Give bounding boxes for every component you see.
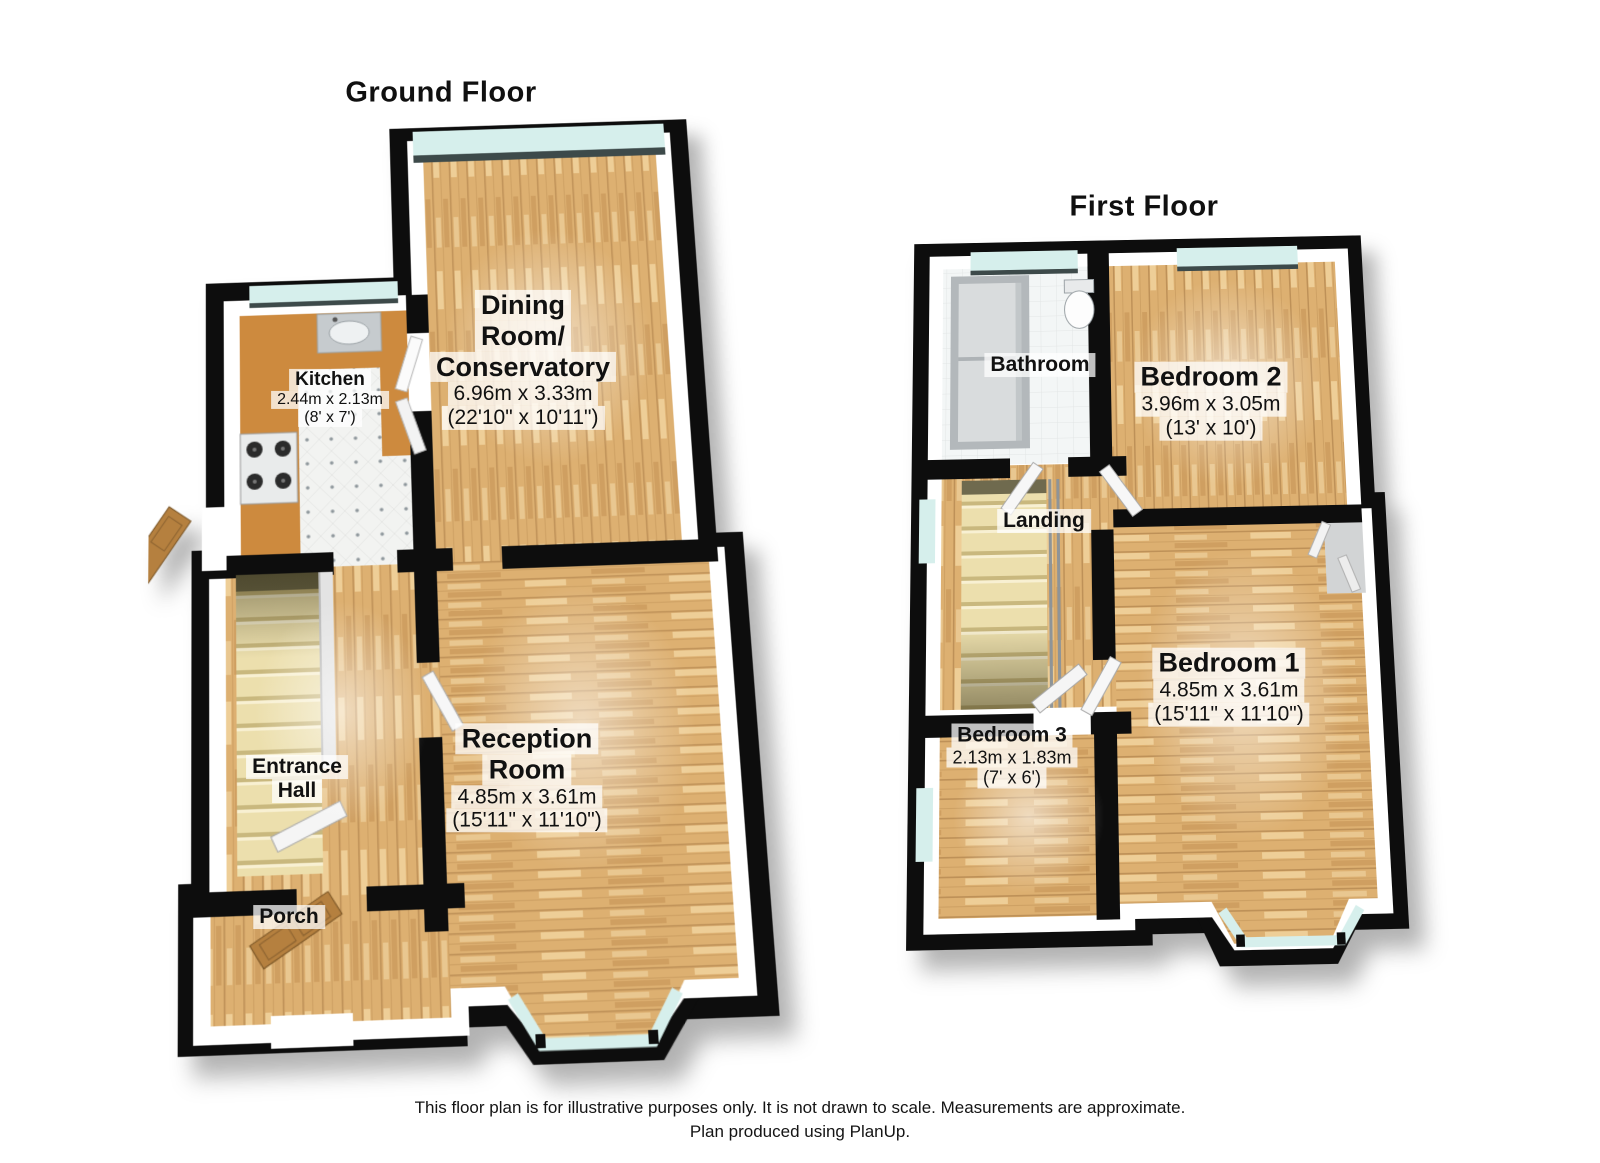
room-dim-imperial: (15'11" x 11'10") — [1148, 702, 1309, 726]
room-name-line: Reception — [456, 723, 599, 754]
room-dim-metric: 4.85m x 3.61m — [1154, 678, 1305, 702]
room-name-line: Room — [483, 754, 572, 785]
room-label-porch: Porch — [253, 905, 325, 929]
disclaimer-line2: Plan produced using PlanUp. — [0, 1120, 1600, 1144]
ground-floor-title: Ground Floor — [345, 77, 536, 110]
room-dim-imperial: (7' x 6') — [977, 768, 1047, 789]
room-dim-metric: 4.85m x 3.61m — [452, 785, 603, 809]
room-name-line: Bedroom 2 — [1134, 362, 1287, 393]
room-label-dining: Dining Room/ Conservatory 6.96m x 3.33m … — [430, 290, 616, 430]
room-dim-imperial: (22'10" x 10'11") — [442, 406, 605, 430]
room-name-line: Hall — [272, 779, 323, 803]
room-label-landing: Landing — [997, 509, 1091, 533]
room-name-line: Bedroom 1 — [1152, 648, 1305, 679]
room-name-line: Entrance — [246, 755, 348, 779]
room-dim-metric: 6.96m x 3.33m — [448, 382, 599, 406]
room-dim-metric: 2.13m x 1.83m — [946, 747, 1077, 768]
room-label-entrance-hall: Entrance Hall — [246, 755, 348, 803]
first-floor-plan — [873, 235, 1433, 979]
room-name-line: Bathroom — [984, 353, 1095, 377]
room-name-line: Conservatory — [430, 351, 616, 382]
first-floor-title: First Floor — [1070, 191, 1219, 224]
room-label-reception: Reception Room 4.85m x 3.61m (15'11" x 1… — [446, 723, 607, 832]
first-floor-drawing — [873, 235, 1433, 979]
toilet-icon — [1064, 279, 1094, 328]
room-name-line: Dining — [475, 290, 571, 321]
room-label-bedroom2: Bedroom 2 3.96m x 3.05m (13' x 10') — [1134, 362, 1287, 441]
room-dim-metric: 3.96m x 3.05m — [1136, 392, 1287, 416]
room-label-kitchen: Kitchen 2.44m x 2.13m (8' x 7') — [271, 369, 389, 427]
room-dim-imperial: (15'11" x 11'10") — [446, 809, 607, 833]
room-label-bedroom1: Bedroom 1 4.85m x 3.61m (15'11" x 11'10"… — [1148, 648, 1309, 727]
room-name-line: Kitchen — [289, 369, 371, 391]
ground-floor-plan — [144, 118, 804, 1082]
room-name-line: Porch — [253, 905, 325, 929]
disclaimer-line1: This floor plan is for illustrative purp… — [0, 1096, 1600, 1120]
room-dim-imperial: (8' x 7') — [298, 409, 361, 427]
side-door-icon — [144, 507, 190, 596]
floorplan-page: Ground Floor First Floor — [0, 0, 1600, 1163]
room-dim-imperial: (13' x 10') — [1160, 416, 1263, 440]
room-name-line: Landing — [997, 509, 1091, 533]
room-label-bedroom3: Bedroom 3 2.13m x 1.83m (7' x 6') — [946, 724, 1077, 789]
ground-floor-drawing — [144, 118, 804, 1082]
side-doorway-gap — [202, 507, 227, 571]
disclaimer: This floor plan is for illustrative purp… — [0, 1096, 1600, 1144]
room-name-line: Room/ — [475, 321, 571, 352]
front-doorway-gap — [271, 1013, 354, 1049]
room-name-line: Bedroom 3 — [951, 724, 1073, 748]
kitchen-hob-icon — [240, 432, 298, 504]
room-dim-metric: 2.44m x 2.13m — [271, 391, 389, 409]
room-label-bathroom: Bathroom — [984, 353, 1095, 377]
kitchen-sink-icon — [317, 312, 382, 353]
